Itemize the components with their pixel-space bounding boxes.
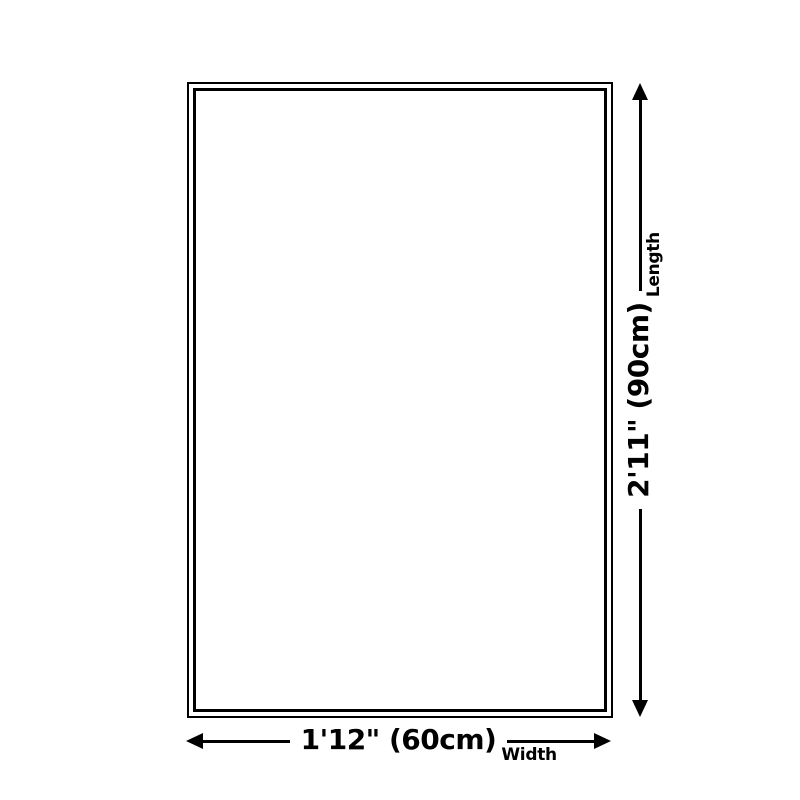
- dimension-diagram: 2'11" (90cm) Length 1'12" (60cm) Width: [0, 0, 800, 800]
- product-outline: [187, 82, 613, 718]
- width-label: Width: [501, 745, 556, 765]
- width-value: 1'12" (60cm): [301, 726, 497, 756]
- arrow-down-icon: [632, 700, 648, 717]
- length-dimension-line: Length: [639, 100, 642, 291]
- length-dimension-line: [639, 509, 642, 700]
- length-dimension: 2'11" (90cm) Length: [618, 83, 662, 717]
- length-value: 2'11" (90cm): [625, 302, 655, 498]
- arrow-left-icon: [186, 733, 203, 749]
- product-outline-inner: [193, 88, 607, 712]
- width-dimension-line: [203, 740, 290, 743]
- length-label: Length: [644, 232, 664, 297]
- width-dimension-line: Width: [507, 740, 594, 743]
- arrow-up-icon: [632, 83, 648, 100]
- arrow-right-icon: [594, 733, 611, 749]
- width-dimension: 1'12" (60cm) Width: [186, 719, 611, 763]
